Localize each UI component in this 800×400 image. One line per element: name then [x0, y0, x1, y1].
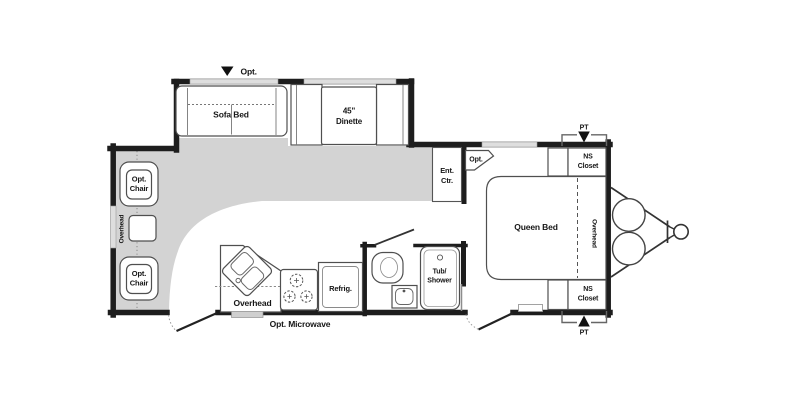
- tub-shower: Tub/ Shower: [421, 247, 460, 310]
- lounge-side-table: [129, 216, 156, 242]
- front-lounge: Opt. Chair Opt. Chair Overhead: [119, 162, 159, 300]
- opt-microwave-label: Opt. Microwave: [270, 319, 331, 329]
- ns-closet-bottom-label1: NS: [583, 286, 593, 293]
- opt-chair-upper-label1: Opt.: [132, 175, 146, 184]
- ns-closet-top: [568, 148, 606, 176]
- hitch-coupler: [674, 225, 688, 239]
- tub-shower-label1: Tub/: [433, 269, 447, 276]
- ent-center-label2: Ctr.: [441, 176, 453, 185]
- bedroom-window: [482, 142, 537, 147]
- floorplan-canvas: Sofa Bed 45" Dinette Opt. Opt. Chair Opt…: [0, 0, 800, 400]
- slideout-opt-label: Opt.: [241, 67, 257, 77]
- dinette-window: [304, 79, 396, 84]
- toilet: [372, 253, 403, 284]
- bathroom-sink: [392, 286, 417, 309]
- bedroom-step: [519, 305, 543, 312]
- opt-tv-label: Opt.: [469, 157, 483, 164]
- opt-chair-lower-label2: Chair: [130, 279, 149, 288]
- dinette-table: [322, 87, 377, 145]
- pt-bottom-label: PT: [580, 330, 590, 337]
- sofa-bed: Sofa Bed: [176, 86, 287, 136]
- entry-step: [232, 312, 264, 318]
- ns-closet-top-label1: NS: [583, 154, 593, 161]
- pt-top-label: PT: [580, 125, 590, 132]
- opt-chair-upper-label2: Chair: [130, 184, 149, 193]
- nightstand-bottom: [548, 280, 568, 310]
- front-window: [111, 206, 117, 248]
- dinette: 45" Dinette: [291, 85, 409, 146]
- propane-tank: [613, 199, 646, 232]
- ns-closet-top-label2: Closet: [578, 163, 599, 170]
- tub-shower-label2: Shower: [427, 278, 452, 285]
- stove: [281, 270, 318, 311]
- refrigerator: Refrig.: [319, 263, 363, 312]
- rv-floorplan: Sofa Bed 45" Dinette Opt. Opt. Chair Opt…: [0, 0, 800, 400]
- sofa-window: [190, 79, 278, 84]
- propane-tank: [613, 232, 646, 265]
- lounge-overhead-label: Overhead: [119, 214, 126, 243]
- kitchen-overhead-label: Overhead: [233, 298, 271, 308]
- bedroom-overhead-label: Overhead: [591, 219, 598, 248]
- queen-bed-label: Queen Bed: [514, 222, 558, 232]
- dinette-label: Dinette: [336, 117, 363, 126]
- opt-chair-lower-label1: Opt.: [132, 269, 146, 278]
- ns-closet-bottom-label2: Closet: [578, 296, 599, 303]
- dinette-bench-right: [377, 85, 409, 146]
- dinette-size-label: 45": [343, 107, 356, 116]
- refrigerator-label: Refrig.: [329, 284, 352, 293]
- sofa-bed-label: Sofa Bed: [213, 110, 249, 120]
- nightstand-top: [548, 148, 568, 176]
- ent-center-label1: Ent.: [440, 166, 454, 175]
- dinette-bench-left: [291, 85, 322, 146]
